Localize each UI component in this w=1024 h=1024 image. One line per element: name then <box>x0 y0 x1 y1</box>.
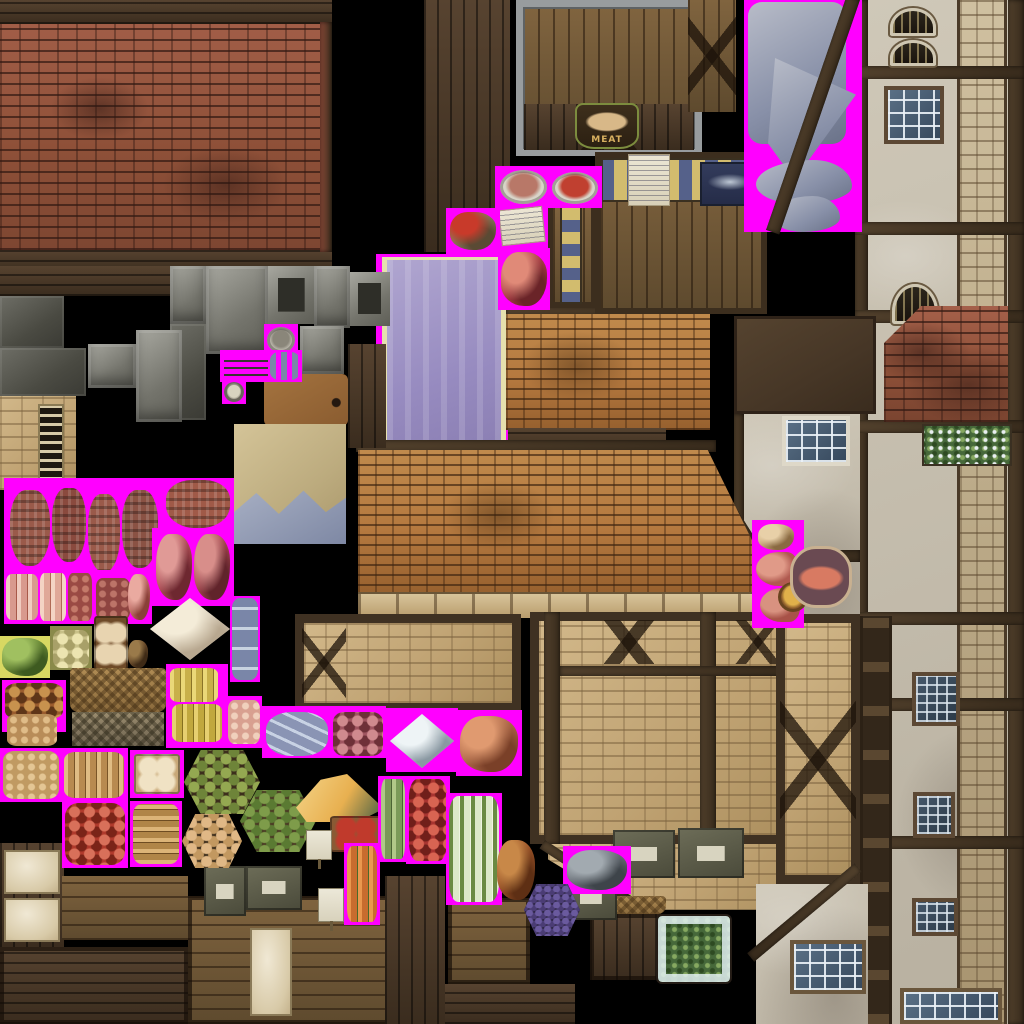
window-bottom-right <box>900 988 1002 1024</box>
basket-top <box>70 668 166 712</box>
vent-slats <box>38 404 64 482</box>
stone-column-right <box>957 0 1007 1024</box>
building-right-edge-beam <box>1008 0 1024 1024</box>
red-apples-column <box>409 779 447 861</box>
sausage-garland <box>166 480 230 528</box>
checker-column-strip <box>560 202 582 304</box>
metal-frame-box <box>268 266 314 324</box>
barred-window-3 <box>912 898 958 936</box>
steak-stack <box>501 252 547 306</box>
square-window-blue <box>884 86 944 144</box>
metal-box-4 <box>350 272 390 326</box>
purple-curtain <box>382 257 506 453</box>
orange-roof-small <box>506 314 710 430</box>
sausage-bundle-2 <box>52 488 86 562</box>
pumpkin-wedges <box>296 774 384 822</box>
barred-window-1 <box>912 672 960 726</box>
menu-paper <box>628 154 670 206</box>
fish-blue-group <box>266 712 328 756</box>
braided-breads <box>133 804 179 864</box>
potato-hex-crate <box>182 814 242 868</box>
pufferfish <box>567 850 627 890</box>
bananas-bunch-2 <box>172 704 222 742</box>
wall-central-post-2 <box>700 612 716 844</box>
fish-column <box>232 598 258 680</box>
sliced-meat-roll <box>128 574 150 620</box>
crossbrace-panel <box>688 0 736 112</box>
sausage-strings <box>88 494 120 572</box>
asparagus-bunch <box>381 779 405 859</box>
wall-central-brace-1 <box>564 620 694 664</box>
gauge-dial <box>224 382 244 402</box>
wood-shelf-edge <box>0 266 170 296</box>
parchment-square-2 <box>4 898 60 942</box>
brick-roof-cornice <box>0 0 332 24</box>
ham-leg-1 <box>156 534 192 600</box>
carrots-bunch <box>347 846 377 922</box>
basket-bottom <box>72 712 164 746</box>
wood-crate-dark-mid <box>590 914 662 980</box>
green-apple-crate <box>184 750 260 814</box>
cloth-diamond <box>150 598 230 660</box>
sausage-plate <box>500 170 547 204</box>
fish-red-group <box>333 712 383 756</box>
green-peppers <box>2 638 48 676</box>
wall-left-brace <box>302 622 346 704</box>
wood-crates-left <box>0 947 188 1024</box>
brick-roof-trim <box>320 22 332 252</box>
meat-shop-sign: MEAT <box>575 103 639 149</box>
wood-shelf-unit <box>62 876 188 940</box>
metal-box-2 <box>206 266 268 354</box>
parchment-square-1 <box>4 850 60 894</box>
metal-box-9 <box>88 344 136 388</box>
metal-box-1 <box>170 266 206 324</box>
metal-box-5 <box>300 326 344 374</box>
crackers-four <box>134 754 180 794</box>
wall-central-midbeam <box>560 666 800 676</box>
brick-roof-large <box>0 0 332 272</box>
sign-board-brown <box>734 316 876 414</box>
metal-box-8 <box>0 348 86 396</box>
wood-column-dark <box>385 876 445 1024</box>
tomato-pile <box>65 803 125 865</box>
wall-central-post-1 <box>544 612 560 844</box>
grill-basket <box>450 212 496 250</box>
bananas-bunch-1 <box>170 668 218 702</box>
metal-box-labeled-2 <box>678 828 744 878</box>
metal-box-3 <box>314 266 350 328</box>
onions-grid <box>3 751 59 799</box>
meatball-strand <box>68 573 92 621</box>
metal-box-7 <box>0 296 64 348</box>
meatballs-group <box>96 578 130 620</box>
barred-window-2 <box>913 792 955 838</box>
texture-atlas-canvas: MEAT <box>0 0 1024 1024</box>
metal-box-labeled-4 <box>204 866 246 916</box>
central-roof <box>358 450 760 596</box>
corner-brace <box>780 700 856 820</box>
price-sign-2 <box>318 888 344 922</box>
hook-latch <box>128 640 148 668</box>
wood-counter-right <box>445 984 575 1024</box>
price-sign-1 <box>306 830 332 860</box>
dark-door-plank <box>348 344 386 448</box>
parchment-poster <box>250 928 292 1016</box>
buns-pair <box>53 630 89 668</box>
leeks-bunch <box>449 796 499 902</box>
white-window <box>782 416 850 466</box>
roast-meat <box>497 840 535 900</box>
window-gable-wide <box>790 940 866 994</box>
fish-shop-sign <box>790 546 852 608</box>
paper-wraps <box>498 206 546 246</box>
pork-belly-slices <box>40 573 66 621</box>
fish-trio <box>270 352 300 380</box>
baguettes <box>64 752 124 798</box>
greens-ice-crate <box>656 914 732 984</box>
sausage-bundle-1 <box>10 490 50 566</box>
ham-leg-2 <box>194 534 230 600</box>
metal-box-10 <box>136 330 182 422</box>
metal-box-labeled-5 <box>246 866 302 910</box>
shelf-crate <box>448 898 530 984</box>
bacon-strips <box>6 574 38 620</box>
cakes-box <box>94 616 128 670</box>
tomato-plate <box>552 172 598 204</box>
skewers <box>224 356 272 376</box>
timber-beam-h-1 <box>855 66 1024 79</box>
timber-beam-h-2 <box>855 222 1024 235</box>
fan-ornament <box>758 524 794 550</box>
flower-box <box>922 424 1012 466</box>
squid-octopus <box>460 716 518 772</box>
rolls-six <box>7 714 57 746</box>
shrimp-cluster <box>228 700 260 744</box>
